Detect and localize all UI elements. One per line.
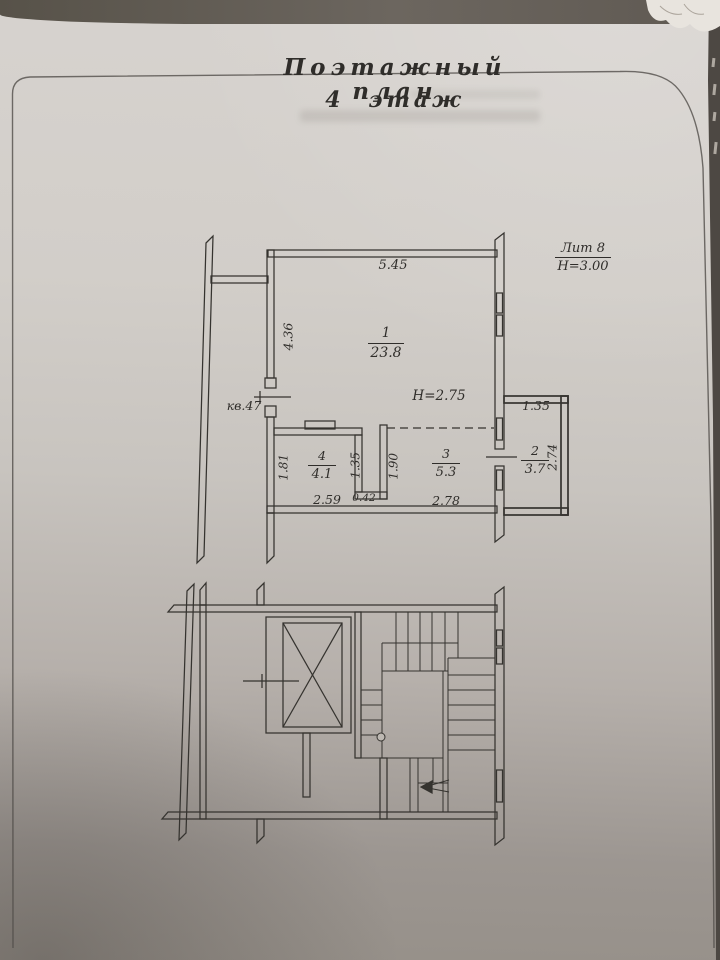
staircase — [361, 612, 495, 812]
dim-step: 0.42 — [342, 493, 386, 504]
room4-area: 4.1 — [312, 466, 333, 481]
window — [497, 648, 503, 664]
elevator-shaft — [243, 617, 351, 733]
page-frame-border — [13, 71, 715, 948]
dim-room4-depth: 1.81 — [278, 436, 291, 498]
page-title-line2: 4 этаж — [235, 89, 555, 112]
ceiling-height-note: Н=2.75 — [396, 389, 482, 403]
outer-wall-left — [179, 584, 194, 840]
dim-room3-depth: 1.90 — [388, 435, 401, 497]
room3-label: 3 5.3 — [420, 448, 472, 479]
legend-liter: Лит 8 — [555, 242, 611, 258]
dim-room2-width: 1.35 — [505, 399, 567, 412]
room3-number: 3 — [432, 448, 460, 464]
window — [497, 630, 503, 646]
room4-number: 4 — [308, 450, 336, 466]
dim-room1-depth: 4.36 — [281, 306, 294, 368]
window — [497, 770, 503, 802]
window — [497, 293, 503, 313]
window — [497, 315, 503, 336]
room1-number: 1 — [368, 327, 405, 344]
room1-area: 23.8 — [370, 344, 401, 360]
document-photo: Поэтажный план 4 этаж Лит 8 Н=3.00 5.45 … — [0, 0, 720, 960]
dim-room3-width: 2.78 — [415, 494, 477, 507]
loggia-wall — [561, 396, 568, 515]
loggia-wall — [504, 508, 568, 515]
window — [497, 418, 503, 440]
room3-area: 5.3 — [436, 464, 457, 479]
room1-label: 1 23.8 — [355, 327, 417, 360]
dim-room2-depth: 2.74 — [547, 426, 560, 488]
outer-wall-left — [197, 236, 213, 563]
room2-area: 3.7 — [525, 461, 546, 476]
dim-room4-inner: 1.35 — [350, 434, 363, 496]
legend-height: Н=3.00 — [557, 258, 608, 273]
room4-label: 4 4.1 — [296, 450, 348, 481]
crumpled-paper-corner — [646, 0, 720, 32]
apartment-number-label: кв.47 — [213, 399, 275, 412]
legend-liter-height: Лит 8 Н=3.00 — [544, 242, 622, 273]
window — [497, 470, 503, 490]
dim-room1-width: 5.45 — [362, 259, 424, 273]
lower-plan — [162, 583, 504, 845]
